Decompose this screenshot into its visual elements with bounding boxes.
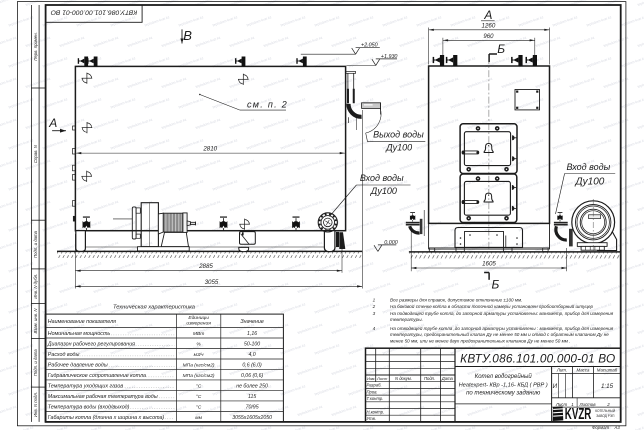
svg-text:1260: 1260 (482, 23, 496, 30)
svg-text:°С: °С (196, 383, 202, 389)
svg-text:мм: мм (195, 416, 202, 421)
svg-text:N докум.: N докум. (395, 376, 412, 381)
svg-text:Т.контр.: Т.контр. (367, 396, 384, 401)
svg-text:Подп.: Подп. (424, 376, 435, 381)
svg-text:по техническому заданию: по техническому заданию (466, 391, 541, 397)
svg-text:3: 3 (373, 311, 376, 316)
svg-text:КОТЕЛЬНЫЙ: КОТЕЛЬНЫЙ (595, 409, 616, 413)
svg-text:Все размеры для справок, допус: Все размеры для справок, допустимое откл… (390, 298, 522, 303)
svg-text:На боковой стенке котла в обла: На боковой стенке котла в области топочн… (390, 303, 594, 309)
svg-text:МПа (кгс/см2): МПа (кгс/см2) (183, 373, 215, 379)
svg-text:KVZR: KVZR (565, 404, 592, 422)
svg-text:ЗАВОД РЭП: ЗАВОД РЭП (596, 414, 615, 418)
svg-text:Справ. N: Справ. N (33, 144, 38, 163)
svg-text:1,16: 1,16 (247, 331, 257, 337)
svg-text:°С: °С (196, 394, 202, 400)
svg-text:115: 115 (248, 394, 256, 400)
svg-text:50-100: 50-100 (244, 341, 260, 347)
svg-text:МПа (кгс/см2): МПа (кгс/см2) (183, 362, 215, 368)
svg-text:0.000: 0.000 (384, 240, 398, 246)
svg-text:КВТУ.086.101.00.000-01 ВО: КВТУ.086.101.00.000-01 ВО (460, 351, 615, 365)
svg-text:3055: 3055 (205, 279, 219, 286)
svg-text:Вход воды: Вход воды (360, 173, 404, 183)
svg-text:менее 50 мм, или не менее двух: менее 50 мм, или не менее двух предохран… (390, 338, 570, 343)
svg-text:2: 2 (372, 304, 376, 309)
svg-text:A3: A3 (614, 425, 621, 430)
svg-text:3055х1605х2050: 3055х1605х2050 (232, 415, 272, 421)
svg-text:4,0: 4,0 (248, 352, 255, 358)
svg-text:Гидравлическое сопротивление к: Гидравлическое сопротивление котла (48, 373, 146, 379)
svg-text:Инв. N дубл.: Инв. N дубл. (33, 274, 38, 299)
svg-text:Температура воды (вход/выход): Температура воды (вход/выход) (48, 404, 130, 410)
svg-text:Взам. инв. N: Взам. инв. N (33, 308, 38, 334)
svg-text:0,06 (0,6): 0,06 (0,6) (241, 373, 263, 379)
svg-text:Разраб.: Разраб. (367, 383, 382, 388)
svg-text:Ду100: Ду100 (370, 186, 397, 196)
svg-text:2885: 2885 (198, 263, 213, 270)
svg-text:КВТУ.086.101.00.000-01 ВО: КВТУ.086.101.00.000-01 ВО (50, 9, 137, 16)
svg-text:Габариты котла (длинна х ширин: Габариты котла (длинна х ширина х высота… (48, 415, 165, 421)
svg-text:см. п. 2: см. п. 2 (247, 100, 288, 110)
svg-text:Изм.: Изм. (367, 376, 376, 381)
svg-text:Ду100: Ду100 (575, 177, 605, 188)
svg-text:А: А (48, 116, 57, 130)
svg-text:И: И (553, 383, 558, 390)
svg-text:Лит.: Лит. (556, 367, 567, 372)
svg-text:измерения: измерения (186, 322, 211, 327)
svg-text:Пров.: Пров. (367, 389, 378, 394)
svg-text:+2.050: +2.050 (361, 43, 378, 49)
svg-text:1: 1 (373, 298, 376, 303)
svg-text:Единицы: Единицы (188, 315, 209, 321)
svg-text:А: А (483, 8, 492, 22)
svg-text:1605: 1605 (482, 261, 496, 268)
svg-text:На подводящей трубе котла, д: На подводящей трубе котла, до запорной а… (390, 310, 614, 316)
svg-text:Н.контр.: Н.контр. (367, 410, 385, 415)
svg-text:Перв. примен.: Перв. примен. (33, 32, 38, 61)
svg-text:Максимальная рабочая температу: Максимальная рабочая температура воды (48, 394, 158, 400)
svg-text:+1.930: +1.930 (381, 54, 398, 60)
svg-text:Инв. N подл.: Инв. N подл. (33, 392, 38, 417)
svg-text:Значение: Значение (240, 319, 263, 325)
svg-text:%: % (196, 341, 201, 347)
svg-text:Техническая характеристика: Техническая характеристика (113, 304, 196, 310)
svg-text:0,6 (6,0): 0,6 (6,0) (242, 362, 262, 368)
svg-text:Утв.: Утв. (367, 416, 377, 421)
svg-text:Б: Б (492, 278, 500, 292)
svg-text:температуры, предохранительный: температуры, предохранительный клапан Ду… (390, 331, 609, 337)
svg-text:Котел водогрейный: Котел водогрейный (475, 373, 533, 380)
svg-text:Диапазон рабочего регулировани: Диапазон рабочего регулирования (47, 341, 135, 347)
svg-text:70/95: 70/95 (246, 404, 259, 410)
svg-text:Лист: Лист (376, 376, 388, 381)
svg-text:Масштаб: Масштаб (597, 367, 618, 372)
svg-text:В: В (183, 28, 192, 43)
svg-text:не более 250: не более 250 (236, 383, 268, 389)
svg-text:МВт: МВт (193, 331, 204, 337)
svg-text:Расход воды: Расход воды (48, 352, 80, 358)
svg-text:Номинальная мощность: Номинальная мощность (48, 331, 111, 337)
svg-text:1:15: 1:15 (601, 383, 614, 390)
svg-text:°С: °С (196, 404, 202, 410)
svg-text:Формат: Формат (592, 425, 609, 430)
svg-text:Вход воды: Вход воды (567, 162, 611, 172)
svg-text:Б: Б (497, 42, 505, 56)
svg-text:Масса: Масса (577, 367, 591, 372)
svg-text:Выход воды: Выход воды (373, 129, 424, 139)
svg-text:Рабочее давление воды: Рабочее давление воды (48, 362, 108, 368)
svg-text:Heatexpert- КВр -1,16- КБД ( Р: Heatexpert- КВр -1,16- КБД ( РВР ) (459, 382, 548, 388)
svg-text:Дата: Дата (441, 376, 454, 381)
svg-text:Подп. и дата: Подп. и дата (33, 349, 38, 377)
svg-text:2810: 2810 (202, 146, 217, 153)
svg-text:температуры.: температуры. (390, 317, 423, 322)
svg-text:2: 2 (606, 402, 610, 407)
svg-text:На отводящей трубе котла ,до з: На отводящей трубе котла ,до запорной ар… (390, 325, 614, 331)
svg-text:Ду100: Ду100 (385, 143, 412, 153)
svg-text:Подп. и дата: Подп. и дата (33, 230, 38, 258)
svg-text:960: 960 (483, 34, 494, 40)
svg-text:Наименование показателя: Наименование показателя (48, 319, 116, 325)
svg-text:4: 4 (373, 326, 376, 331)
svg-text:Температура уходящих газов: Температура уходящих газов (48, 383, 124, 389)
svg-text:м3/ч: м3/ч (194, 352, 204, 358)
